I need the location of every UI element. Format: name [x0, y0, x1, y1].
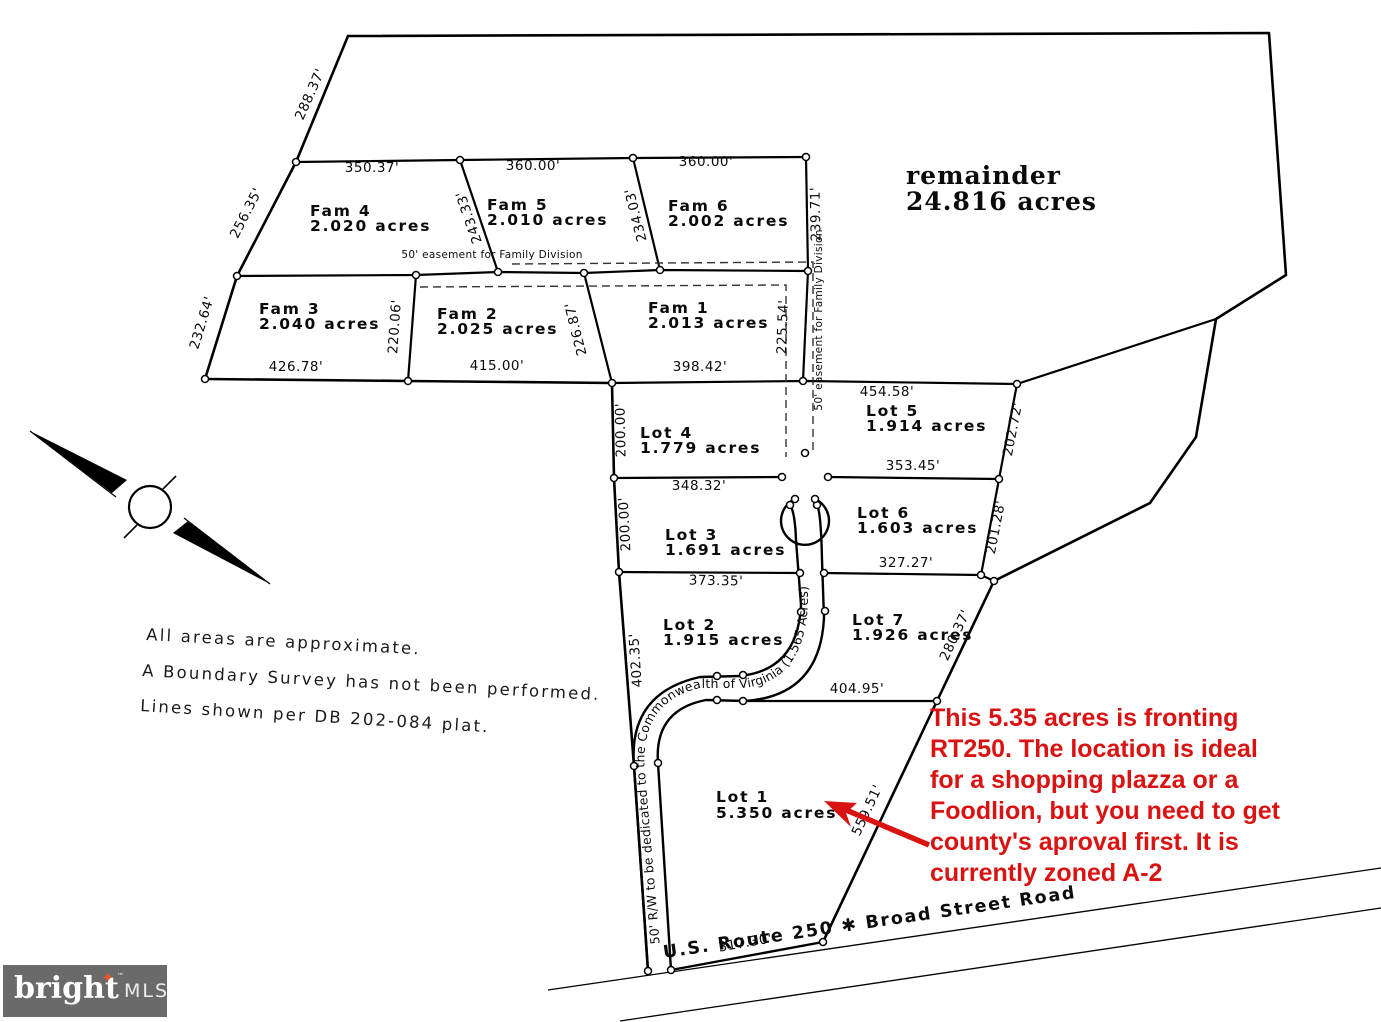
annotation-line: county's aproval first. It is	[930, 827, 1360, 858]
dim-lot1-east: 559.51'	[849, 782, 887, 838]
vertex-node	[405, 378, 412, 385]
trademark-symbol: ™	[117, 972, 124, 980]
lot6-acres: 1.603 acres	[857, 519, 978, 537]
dim-fam2-east: 226.87'	[562, 301, 591, 358]
dim-fam3-east: 220.06'	[385, 299, 405, 354]
north-arrow-tick-sw	[124, 525, 137, 538]
annotation-line: RT250. The location is ideal	[930, 734, 1360, 765]
vertex-node	[825, 474, 832, 481]
fam5-acres: 2.010 acres	[487, 211, 608, 229]
vertex-node	[630, 155, 637, 162]
dim-fam1-bottom: 398.42'	[673, 359, 727, 375]
vertex-node	[293, 159, 300, 166]
easement-label-vertical: 50' easement for Family Division	[813, 229, 825, 410]
dim-lot3-west: 200.00'	[616, 497, 635, 552]
remainder-name: remainder	[906, 161, 1061, 190]
vertex-node	[991, 578, 998, 585]
lot4-acres: 1.779 acres	[640, 439, 761, 457]
north-arrow-nw-edge	[30, 431, 116, 497]
vertex-node	[495, 269, 502, 276]
vertex-node	[779, 474, 786, 481]
vertex-node	[645, 968, 652, 975]
dim-fam5-top: 360.00'	[506, 158, 560, 174]
vertex-node	[797, 570, 804, 577]
lot1-acres: 5.350 acres	[716, 804, 837, 822]
vertex-node	[657, 267, 664, 274]
easement-label-horizontal: 50' easement for Family Division	[401, 249, 582, 261]
vertex-node	[234, 273, 241, 280]
vertex-node	[805, 268, 812, 275]
fam1-east-line	[803, 271, 808, 381]
vertex-node	[802, 450, 809, 457]
vertex-node	[821, 570, 828, 577]
dim-lot5-east: 202.72'	[1000, 401, 1026, 458]
survey-notes: All areas are approximate. A Boundary Su…	[140, 625, 601, 736]
vertex-node	[787, 502, 794, 509]
fam1-acres: 2.013 acres	[648, 314, 769, 332]
lot5-bottom-line	[828, 477, 999, 479]
lot3-acres: 1.691 acres	[665, 541, 786, 559]
vertex-node	[996, 476, 1003, 483]
remainder-label: remainder 24.816 acres	[906, 161, 1097, 216]
bright-mls-logo: bright ✦ ™ MLS	[3, 965, 167, 1017]
dim-lot4-west: 200.00'	[613, 403, 630, 458]
north-arrow-hub	[129, 486, 171, 528]
fam3-2-divider	[408, 275, 416, 381]
vertex-node	[655, 760, 662, 767]
remainder-acres: 24.816 acres	[906, 187, 1097, 216]
lot7-acres: 1.926 acres	[852, 626, 973, 644]
bright-mls-star-icon: ✦	[101, 968, 114, 987]
north-arrow-se-edge	[184, 518, 270, 584]
vertex-node	[202, 376, 209, 383]
north-arrow-se-blade	[173, 521, 270, 584]
fam6-acres: 2.002 acres	[668, 212, 789, 230]
bright-mls-suffix: MLS	[124, 980, 169, 1002]
lot5-ne-link	[1017, 319, 1216, 384]
note-line-3: Lines shown per DB 202-084 plat.	[140, 696, 490, 736]
north-arrow	[30, 431, 270, 584]
annotation-line: This 5.35 acres is fronting	[930, 703, 1360, 734]
dim-lot6-east: 201.28'	[983, 499, 1009, 556]
dim-lot6-bottom: 327.27'	[879, 555, 933, 571]
lot6-bottom-line	[824, 573, 981, 575]
dim-fam4-top: 350.37'	[345, 160, 399, 176]
vertex-node	[457, 157, 464, 164]
vertex-node	[978, 572, 985, 579]
dim-lot2-west: 402.35'	[626, 633, 646, 688]
dim-fam6-top: 360.00'	[679, 154, 733, 170]
vertex-node	[1014, 381, 1021, 388]
dim-lot3-bottom: 373.35'	[689, 573, 744, 590]
annotation-line: for a shopping plazza or a	[930, 765, 1360, 796]
dim-fam3-bottom: 426.78'	[269, 359, 323, 375]
dim-fam2-bottom: 415.00'	[470, 358, 524, 374]
vertex-node	[413, 272, 420, 279]
dim-fam4-east: 243.33'	[453, 189, 486, 246]
vertex-node	[740, 698, 747, 705]
vertex-node	[616, 569, 623, 576]
highway-label: U.S. Route 250 ✱ Broad Street Road	[662, 883, 1078, 963]
vertex-node	[611, 475, 618, 482]
vertex-node	[668, 967, 675, 974]
dim-fam1-east: 225.54'	[774, 299, 792, 354]
fam3-acres: 2.040 acres	[259, 315, 380, 333]
annotation-line: Foodlion, but you need to get	[930, 796, 1360, 827]
vertex-node	[812, 496, 819, 503]
north-arrow-nw-blade	[30, 431, 127, 493]
lot5-acres: 1.914 acres	[866, 417, 987, 435]
fam4-acres: 2.020 acres	[310, 217, 431, 235]
annotation-line: currently zoned A-2	[930, 858, 1360, 889]
dim-fam3-west: 232.64'	[187, 294, 218, 351]
vertex-node	[792, 496, 799, 503]
lot2-acres: 1.915 acres	[663, 631, 784, 649]
vertex-node	[581, 270, 588, 277]
vertex-node	[803, 154, 810, 161]
fam2-acres: 2.025 acres	[437, 320, 558, 338]
easement-dash-upper	[512, 262, 813, 451]
dim-lot4-bottom: 348.32'	[672, 478, 726, 494]
vertex-node	[822, 608, 829, 615]
agent-annotation: This 5.35 acres is fronting RT250. The l…	[930, 703, 1360, 889]
plat-map-page: 288.37' 350.37' 360.00' 360.00' 256.35' …	[0, 0, 1381, 1022]
dim-lot5-bottom: 353.45'	[886, 458, 940, 474]
vertex-node	[800, 378, 807, 385]
vertex-node	[609, 380, 616, 387]
vertex-node	[714, 697, 721, 704]
highway-south-line	[620, 908, 1381, 1021]
north-arrow-tick-ne	[163, 476, 176, 489]
dim-lot5-top: 454.58'	[860, 384, 914, 400]
dim-lot7-bottom: 404.95'	[830, 681, 884, 697]
fam2-1-divider	[584, 273, 612, 383]
note-line-1: All areas are approximate.	[146, 625, 422, 658]
fam-row-divider	[237, 270, 808, 276]
note-line-2: A Boundary Survey has not been performed…	[142, 661, 601, 704]
